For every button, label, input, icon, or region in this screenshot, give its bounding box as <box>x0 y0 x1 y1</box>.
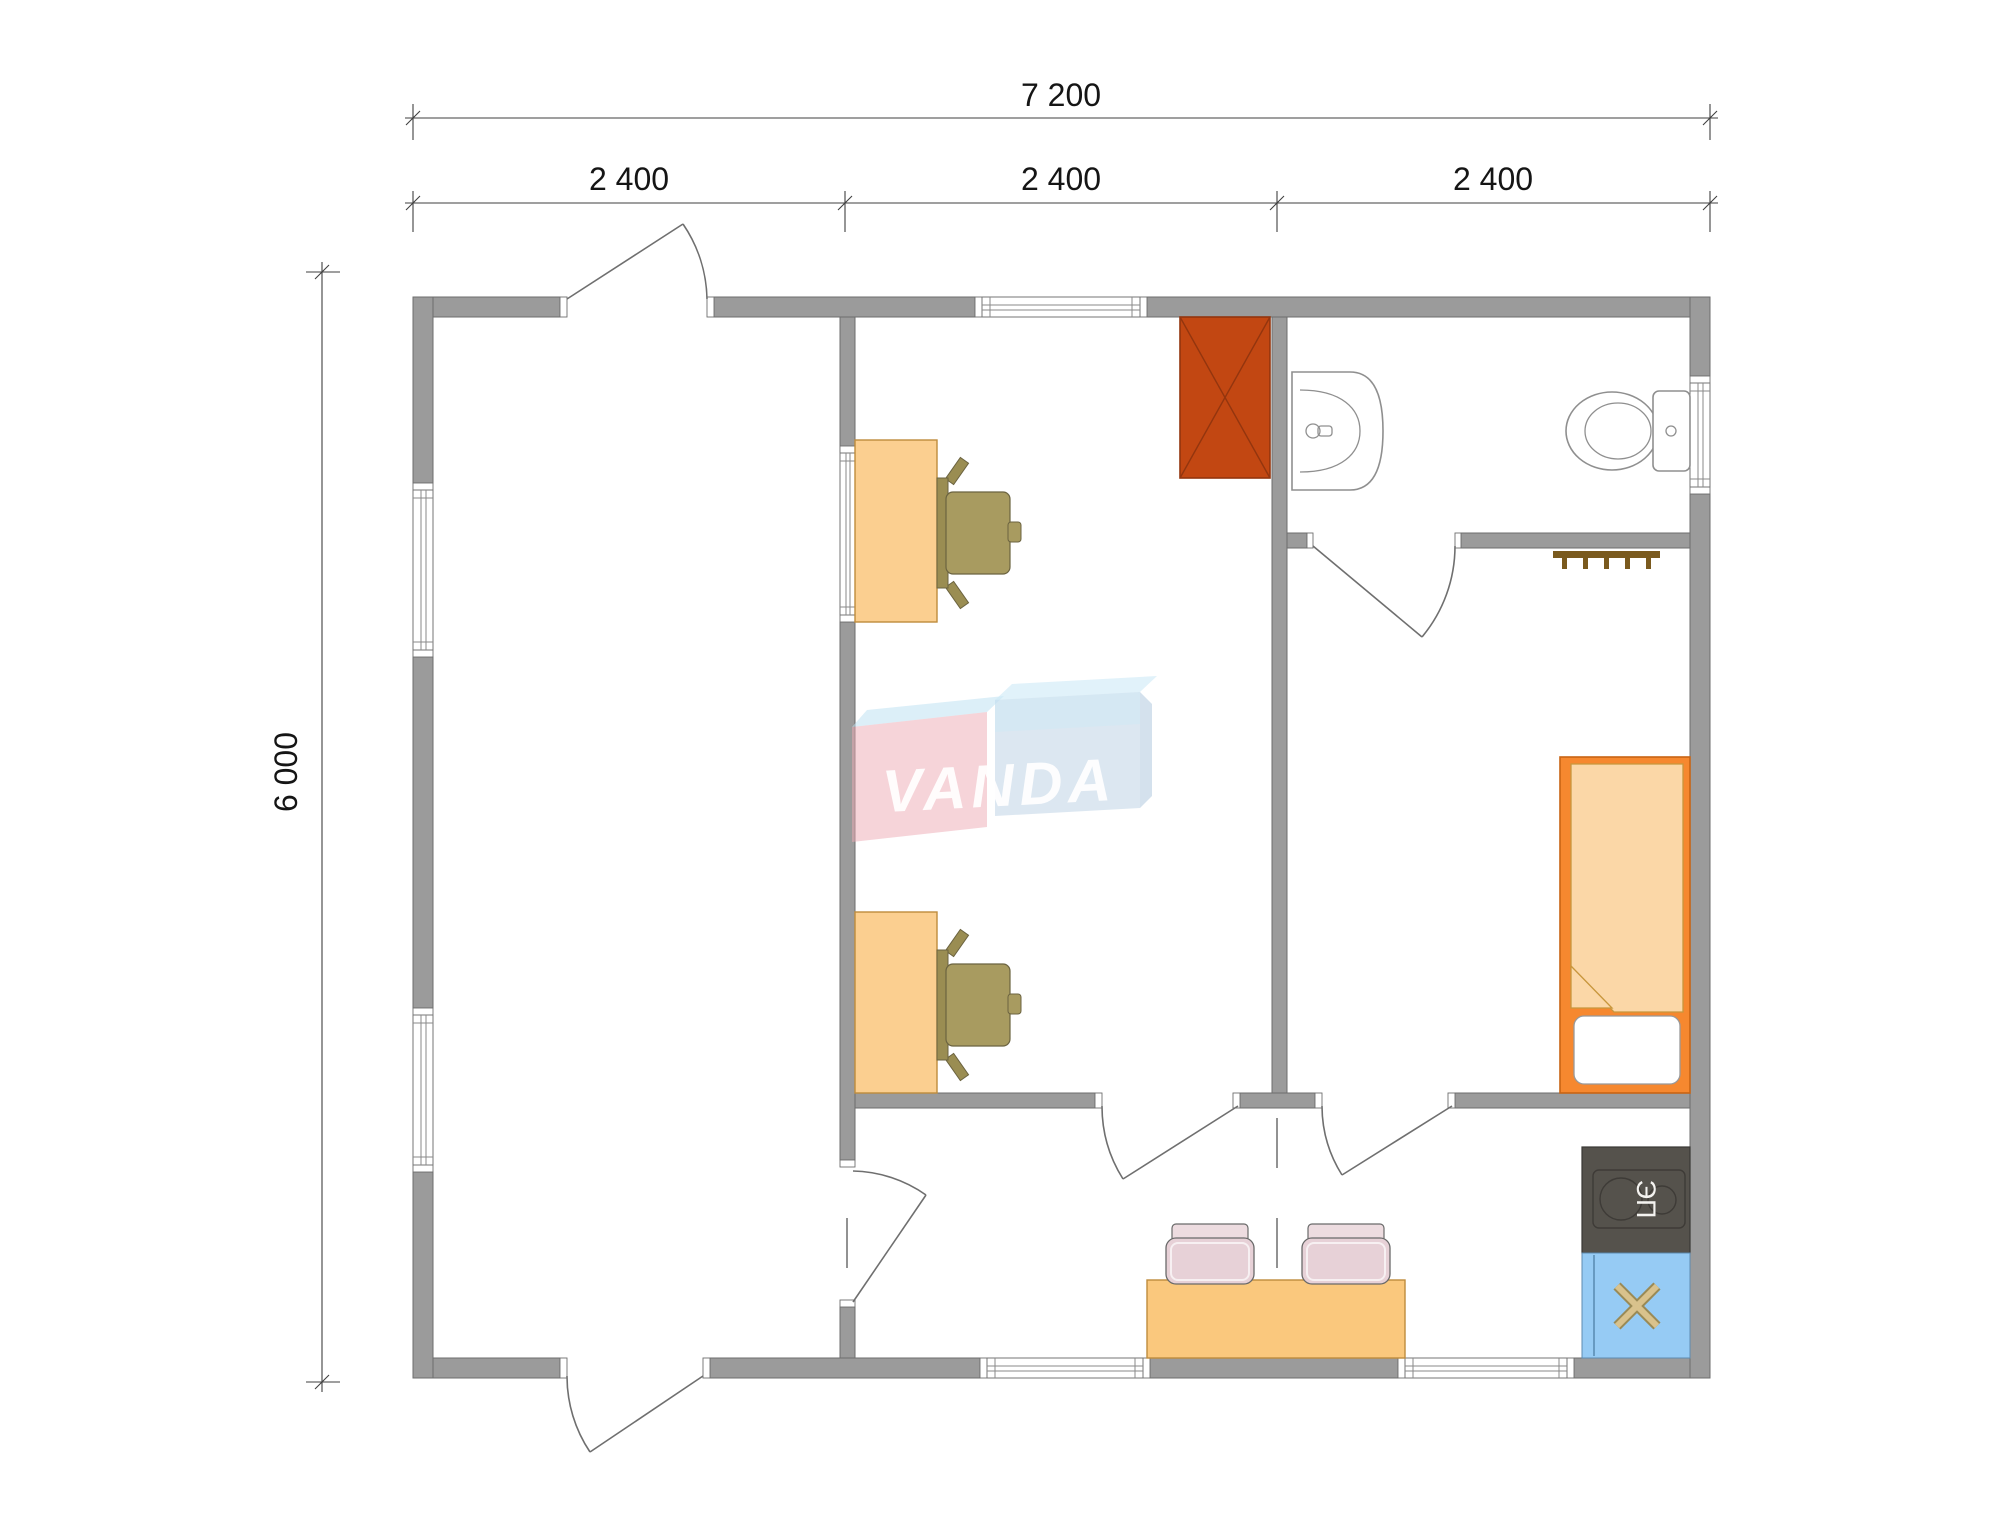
window-jamb <box>1690 487 1710 494</box>
single-bed <box>1560 757 1690 1093</box>
washbasin <box>1292 372 1383 490</box>
chair-seat <box>1302 1238 1390 1284</box>
window-jamb <box>413 483 433 490</box>
chair-foot <box>945 929 968 956</box>
chair-seat <box>946 964 1010 1046</box>
logo-text: VANDA <box>880 746 1117 825</box>
window-bottom-right <box>1405 1358 1567 1378</box>
door-left-room <box>853 1171 926 1302</box>
dining-chair-left <box>1166 1224 1254 1284</box>
chair-foot <box>945 457 968 484</box>
wall-segment <box>1690 494 1710 1378</box>
dining-table <box>1147 1280 1405 1358</box>
wall-segment <box>1272 317 1287 1093</box>
window-jamb <box>1567 1358 1574 1378</box>
wall-segment <box>1690 297 1710 376</box>
wall-segment <box>714 297 975 317</box>
wall-segment <box>413 657 433 1008</box>
door-and-window-jambs <box>413 297 1710 1378</box>
chair-armrest <box>1008 994 1021 1014</box>
chair-armrest <box>1008 522 1021 542</box>
door-bathroom <box>1313 546 1455 637</box>
wall-segment <box>1287 533 1307 548</box>
window-jamb <box>1143 1358 1150 1378</box>
window-jamb <box>980 1358 987 1378</box>
office-chair-lower <box>937 929 1021 1080</box>
door-jamb <box>1315 1093 1322 1108</box>
window-jamb <box>1140 297 1147 317</box>
window-jamb <box>1398 1358 1405 1378</box>
dimension-total-width-label: 7 200 <box>1021 77 1101 113</box>
wall-segment <box>1147 297 1710 317</box>
desk-lower <box>855 912 937 1093</box>
wall-segment <box>855 1093 1095 1108</box>
wall-segment <box>1461 533 1690 548</box>
window-jamb <box>413 1165 433 1172</box>
wall-segment <box>413 1358 560 1378</box>
wall-segment <box>413 297 560 317</box>
door-jamb <box>1095 1093 1102 1108</box>
floor-plan-canvas: 7 200 2 400 2 400 2 400 6 000 <box>0 0 2000 1524</box>
wall-segment <box>1455 1093 1690 1108</box>
wall-segment <box>1240 1093 1315 1108</box>
window-top <box>982 297 1140 317</box>
exterior-walls <box>413 297 1710 1378</box>
office-chair-upper <box>937 457 1021 608</box>
chair-foot <box>945 581 968 608</box>
desk-upper <box>855 440 937 622</box>
windows <box>413 297 1710 1378</box>
window-jamb <box>413 1008 433 1015</box>
window-jamb <box>1690 376 1710 383</box>
door-entrance-top <box>567 224 707 299</box>
wall-segment <box>840 622 855 1160</box>
pillow <box>1574 1016 1680 1084</box>
door-jamb <box>707 297 714 317</box>
door-jamb <box>560 1358 567 1378</box>
wall-segment <box>413 297 433 483</box>
wall-hooks <box>1553 551 1660 569</box>
dimension-module-3-label: 2 400 <box>1453 161 1533 197</box>
dimension-module-2-label: 2 400 <box>1021 161 1101 197</box>
floor-plan-drawing: 7 200 2 400 2 400 2 400 6 000 <box>0 0 2000 1524</box>
door-entrance-bottom <box>567 1376 703 1452</box>
chair-seat <box>946 492 1010 574</box>
wall-segment <box>840 317 855 453</box>
window-jamb <box>840 615 855 622</box>
window-jamb <box>975 297 982 317</box>
wall-segment <box>710 1358 980 1378</box>
wall-segment <box>1150 1358 1398 1378</box>
electric-stove: ЭП <box>1582 1147 1690 1253</box>
window-interior-partition <box>840 453 855 615</box>
dining-chair-right <box>1302 1224 1390 1284</box>
window-jamb <box>413 650 433 657</box>
window-left-upper <box>413 490 433 650</box>
wall-segment <box>413 1172 433 1378</box>
kitchen-sink-unit <box>1582 1253 1690 1358</box>
door-hall-to-bedroom <box>1322 1106 1452 1175</box>
toilet-tank <box>1653 391 1690 471</box>
dimension-module-1-label: 2 400 <box>589 161 669 197</box>
wall-segment <box>840 1307 855 1358</box>
door-jamb <box>560 297 567 317</box>
chair-foot <box>945 1053 968 1080</box>
door-jamb <box>703 1358 710 1378</box>
dimension-total-height-label: 6 000 <box>268 732 304 812</box>
window-jamb <box>840 446 855 453</box>
dimension-annotations: 7 200 2 400 2 400 2 400 6 000 <box>268 77 1718 1392</box>
door-jamb <box>840 1160 855 1167</box>
logo-right-bevel <box>1140 692 1152 808</box>
door-jamb <box>1233 1093 1240 1108</box>
bed-blanket <box>1571 764 1683 1012</box>
chair-seat <box>1166 1238 1254 1284</box>
window-bathroom-right <box>1690 383 1710 487</box>
wardrobe <box>1180 317 1270 478</box>
door-hall-to-middle-room <box>1102 1106 1238 1179</box>
door-jamb <box>1307 533 1313 548</box>
door-jamb <box>1455 533 1461 548</box>
window-left-lower <box>413 1015 433 1165</box>
window-bottom-left <box>987 1358 1143 1378</box>
toilet <box>1566 391 1690 471</box>
stove-label: ЭП <box>1631 1180 1661 1219</box>
vanda-watermark: VANDA <box>852 676 1157 842</box>
